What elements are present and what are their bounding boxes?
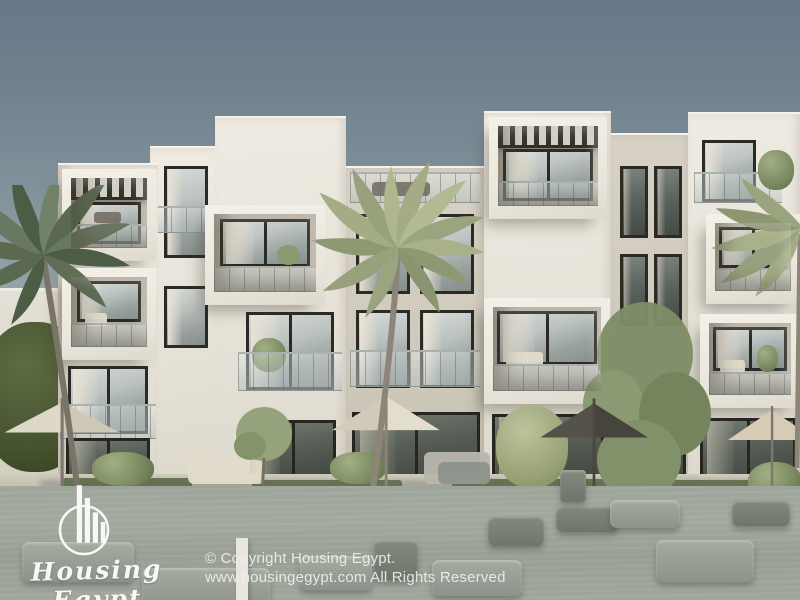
- housing-egypt-logo highrise-buildings-in-circle-icon: [46, 482, 138, 562]
- pouf: [488, 516, 544, 546]
- planter-plant: [277, 245, 299, 265]
- window: [164, 286, 208, 348]
- palm-tree-right: [702, 148, 800, 478]
- pouf: [732, 500, 790, 526]
- balcony-railing: [498, 181, 598, 206]
- brand-wordmark: Housing Egypt: [5, 554, 188, 600]
- copyright-footer: © Copyright Housing Egypt. www.housingeg…: [205, 549, 506, 587]
- rights-line: www.housingegypt.com All Rights Reserved: [205, 568, 506, 587]
- palm-tree-center: [298, 150, 498, 520]
- scene: Housing Egypt © Copyright Housing Egypt.…: [0, 0, 800, 600]
- balcony-interior: [498, 126, 598, 206]
- sun-lounger: [656, 540, 754, 582]
- copyright-line: © Copyright Housing Egypt.: [205, 549, 506, 568]
- pouf: [556, 506, 618, 532]
- window: [654, 166, 682, 238]
- planter-pot: [560, 470, 586, 502]
- olive-tree: [228, 404, 302, 499]
- window: [620, 166, 648, 238]
- sun-lounger: [610, 500, 680, 528]
- pergola-roof: [498, 126, 598, 148]
- balcony-box: [489, 117, 607, 219]
